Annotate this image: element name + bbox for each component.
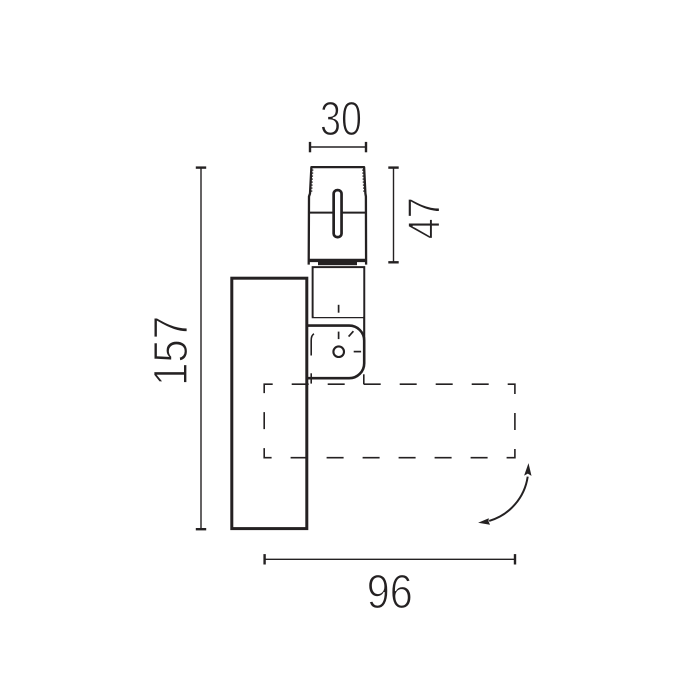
svg-text:96: 96 bbox=[367, 566, 413, 619]
svg-text:157: 157 bbox=[145, 316, 198, 386]
svg-text:47: 47 bbox=[399, 197, 450, 239]
svg-text:30: 30 bbox=[320, 93, 362, 146]
